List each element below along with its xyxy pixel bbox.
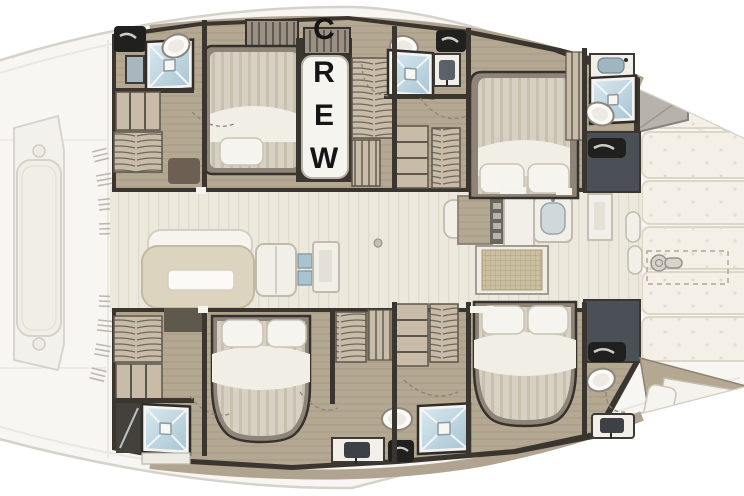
floor-plan-canvas [0,0,744,496]
pillow [267,320,306,347]
port-hull [112,16,642,198]
vanity-locker [114,26,146,52]
crew-cabin-label: CREW [306,8,342,180]
locker [588,138,626,158]
shower [418,403,470,454]
hanging-locker [432,128,460,188]
icebox [298,254,312,268]
deck-hatch [33,338,45,350]
galley-counter [458,196,492,244]
duvet-fold [474,332,576,376]
mast-post [374,239,382,247]
helm-seat [638,60,688,132]
window-slot [500,187,526,194]
galley-worktop [504,194,534,246]
cabinet-door [319,250,332,282]
window-slot [556,188,572,195]
floor-mat [168,158,200,184]
faucet-icon [624,58,628,62]
aft-deck [638,56,744,361]
pillow [222,320,263,347]
bed-stbd-aft [474,302,576,426]
window-slot [198,306,208,313]
basin [439,60,455,80]
catamaran-floor-plan: CREW [0,0,744,496]
basin [600,418,624,433]
hanging-locker [430,304,458,362]
hanging-locker [114,132,162,172]
galley-sink [541,203,565,234]
galley-stove [476,246,548,294]
hanging-locker [336,312,366,362]
duvet-fold [212,346,310,390]
locker-slatted [352,140,380,186]
saloon [110,186,642,312]
pillow [643,383,677,422]
vanity-locker [436,30,466,52]
icebox [298,271,312,285]
saloon-table [168,270,234,290]
bed-port-aft [470,72,578,198]
basin [344,442,370,458]
hanging-locker [114,316,162,362]
companionway-step [628,246,642,274]
vanity-locker [388,440,414,462]
basin [598,58,624,73]
locker [588,342,626,362]
shower-sill [142,453,190,464]
foredeck-sunpad [17,160,61,336]
mirror-panel [126,56,144,83]
locker-slatted [368,310,392,360]
overhead-hatch [246,20,298,48]
storage-room-port-aft [584,132,640,192]
pillow [220,138,263,165]
bed-stbd-fwd [212,316,310,442]
cabinet-dark [164,308,202,332]
window-slot [470,306,494,313]
companionway-step [626,212,640,242]
shower [142,404,190,455]
shelf-unit [116,92,160,130]
storage-room-stbd-aft [584,300,640,362]
window-slot [196,187,206,194]
duvet-fold [210,106,298,142]
bathroom-port-aft [583,54,636,129]
shelf-unit [116,364,162,400]
locker-slatted [566,52,583,140]
pillow [528,306,568,334]
deck-hatch [33,145,45,157]
deck-fitting [701,85,725,103]
